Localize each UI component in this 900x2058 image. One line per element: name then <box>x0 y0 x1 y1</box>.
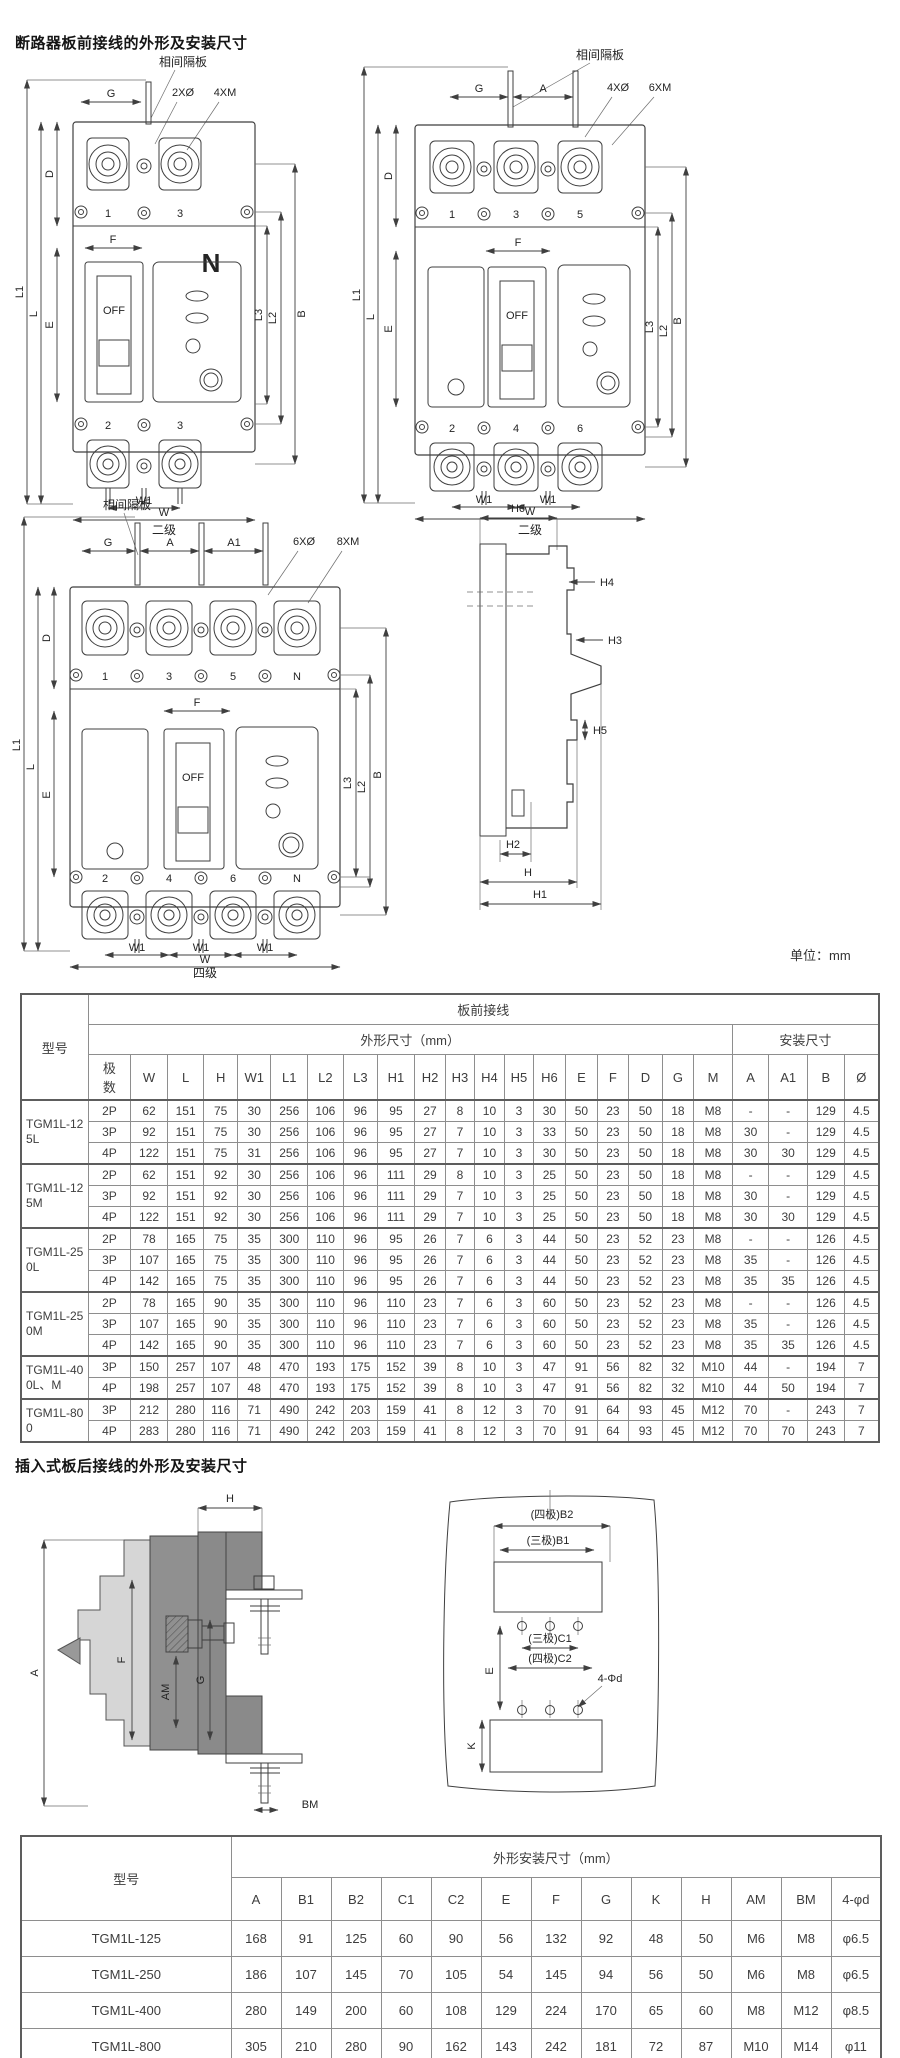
value-cell: 50 <box>566 1122 598 1143</box>
terminal-number: 3 <box>177 208 183 220</box>
dim-label: H6 <box>511 503 525 515</box>
value-cell: 151 <box>167 1186 204 1207</box>
value-cell: 75 <box>204 1228 238 1250</box>
value-cell: 50 <box>566 1100 598 1122</box>
value-cell: - <box>769 1164 808 1186</box>
table-row: TGM1L-400280149200601081292241706560M8M1… <box>21 1993 881 2029</box>
poles-cell: 2P <box>88 1100 131 1122</box>
lower-cutout <box>490 1720 602 1772</box>
dim-label: F <box>194 697 201 709</box>
value-cell: 10 <box>474 1164 504 1186</box>
dim-col-header: G <box>662 1055 694 1101</box>
value-cell: 107 <box>131 1314 168 1335</box>
value-cell: 23 <box>662 1228 694 1250</box>
value-cell: 110 <box>308 1250 344 1271</box>
value-cell: 64 <box>597 1399 629 1421</box>
value-cell: 8 <box>446 1100 474 1122</box>
value-cell: 7 <box>844 1378 879 1400</box>
model-column-header: 型号 <box>21 1836 231 1921</box>
value-cell: 70 <box>769 1421 808 1443</box>
value-cell: 194 <box>807 1378 844 1400</box>
value-cell: 45 <box>662 1399 694 1421</box>
dim-label: A1 <box>227 537 240 549</box>
value-cell: 132 <box>531 1921 581 1957</box>
value-cell: 23 <box>597 1122 629 1143</box>
value-cell: 90 <box>431 1921 481 1957</box>
value-cell: 96 <box>343 1186 378 1207</box>
value-cell: 95 <box>378 1100 415 1122</box>
breaker-body: 1 3 5 F OFF 2 4 6 <box>415 125 645 505</box>
value-cell: 27 <box>414 1100 446 1122</box>
value-cell: 116 <box>204 1421 238 1443</box>
two-pole-front-view-diagram: 相间隔板 G 2XØ 4XM 1 3 N F <box>15 52 315 536</box>
value-cell: 35 <box>732 1250 769 1271</box>
neutral-pole-label: N <box>202 248 221 278</box>
value-cell: 92 <box>131 1186 168 1207</box>
value-cell: 7 <box>446 1250 474 1271</box>
value-cell: 50 <box>681 1921 731 1957</box>
value-cell: 108 <box>431 1993 481 2029</box>
dim-label: H5 <box>593 725 607 737</box>
value-cell: 48 <box>631 1921 681 1957</box>
value-cell: 48 <box>237 1356 271 1378</box>
value-cell: 18 <box>662 1207 694 1229</box>
value-cell: - <box>769 1100 808 1122</box>
table-row: 3P92151753025610696952771033350235018M83… <box>21 1122 879 1143</box>
dim-label: H4 <box>600 577 614 589</box>
table-row: 4P14216575353001109695267634450235223M83… <box>21 1271 879 1293</box>
value-cell: 110 <box>308 1314 344 1335</box>
value-cell: 152 <box>378 1356 415 1378</box>
value-cell: 60 <box>533 1292 566 1314</box>
value-cell: 30 <box>533 1100 566 1122</box>
value-cell: 91 <box>566 1378 598 1400</box>
value-cell: 27 <box>414 1143 446 1165</box>
dim-label: G <box>107 88 116 100</box>
value-cell: 82 <box>629 1356 663 1378</box>
poles-cell: 3P <box>88 1250 131 1271</box>
value-cell: 30 <box>533 1143 566 1165</box>
value-cell: 4.5 <box>844 1314 879 1335</box>
value-cell: 256 <box>271 1100 308 1122</box>
col-header: B2 <box>331 1878 381 1921</box>
value-cell: 75 <box>204 1100 238 1122</box>
table-row: 3P107165903530011096110237636050235223M8… <box>21 1314 879 1335</box>
value-cell: M14 <box>781 2029 831 2058</box>
terminal-number: 4 <box>513 423 519 435</box>
value-cell: 168 <box>231 1921 281 1957</box>
value-cell: 159 <box>378 1421 415 1443</box>
value-cell: 10 <box>474 1207 504 1229</box>
terminal-number: 6 <box>577 423 583 435</box>
table-row: 4P1221519230256106961112971032550235018M… <box>21 1207 879 1229</box>
dim-col-header: H5 <box>505 1055 533 1101</box>
front-wiring-group-header: 板前接线 <box>88 994 879 1025</box>
value-cell: 75 <box>204 1122 238 1143</box>
value-cell: 41 <box>414 1399 446 1421</box>
value-cell: 23 <box>662 1314 694 1335</box>
value-cell: 23 <box>662 1335 694 1357</box>
dim-label: A <box>539 83 547 95</box>
value-cell: 280 <box>331 2029 381 2058</box>
dim-label: H <box>524 867 532 879</box>
col-header: F <box>531 1878 581 1921</box>
value-cell: 90 <box>381 2029 431 2058</box>
dim-label: E <box>44 321 56 328</box>
value-cell: 181 <box>581 2029 631 2058</box>
value-cell: 129 <box>807 1143 844 1165</box>
value-cell: M8 <box>694 1292 733 1314</box>
dim-label: E <box>41 791 53 798</box>
partition-callout: 相间隔板 <box>103 498 268 585</box>
value-cell: 50 <box>629 1164 663 1186</box>
partition-label: 相间隔板 <box>103 498 151 512</box>
dim-label: L <box>25 764 37 770</box>
value-cell: M8 <box>694 1250 733 1271</box>
value-cell: 126 <box>807 1292 844 1314</box>
value-cell: M8 <box>694 1335 733 1357</box>
dim-label: (三极)C1 <box>528 1631 571 1645</box>
value-cell: 96 <box>343 1143 378 1165</box>
dim-label: BM <box>302 1799 319 1811</box>
value-cell: M10 <box>694 1356 733 1378</box>
dim-label: E <box>383 325 395 332</box>
value-cell: 3 <box>505 1399 533 1421</box>
lower-hole-row <box>518 1700 583 1718</box>
value-cell: 92 <box>131 1122 168 1143</box>
value-cell: 23 <box>597 1314 629 1335</box>
value-cell: 143 <box>481 2029 531 2058</box>
value-cell: 280 <box>231 1993 281 2029</box>
value-cell: 305 <box>231 2029 281 2058</box>
dim-col-header: W1 <box>237 1055 271 1101</box>
value-cell: 18 <box>662 1122 694 1143</box>
poles-cell: 3P <box>88 1186 131 1207</box>
dim-label: W <box>200 954 211 966</box>
mounting-plate-drilling-diagram: (四极)B2 (三极)B1 (三极)C1 (四极)C2 E 4-Φd K <box>430 1486 675 1801</box>
value-cell: - <box>732 1164 769 1186</box>
dim-label: L1 <box>351 289 363 301</box>
terminal-number: N <box>293 671 301 683</box>
value-cell: 4.5 <box>844 1228 879 1250</box>
value-cell: 10 <box>474 1143 504 1165</box>
value-cell: 30 <box>769 1207 808 1229</box>
terminal-number: 1 <box>449 209 455 221</box>
mounting-plate-profile <box>480 544 506 836</box>
value-cell: 490 <box>271 1399 308 1421</box>
value-cell: 105 <box>431 1957 481 1993</box>
poles-cell: 4P <box>88 1143 131 1165</box>
breaker-body: 1 3 N F OFF 2 3 <box>73 122 255 504</box>
terminal-number: 3 <box>513 209 519 221</box>
value-cell: 35 <box>237 1292 271 1314</box>
plugin-install-dimension-table: 型号 外形安装尺寸（mm） AB1B2C1C2EFGKHAMBM4-φd TGM… <box>20 1835 882 2058</box>
terminal-number: 3 <box>166 671 172 683</box>
value-cell: 50 <box>566 1335 598 1357</box>
value-cell: 110 <box>308 1271 344 1293</box>
dim-label: L3 <box>253 309 265 321</box>
value-cell: 200 <box>331 1993 381 2029</box>
value-cell: 198 <box>131 1378 168 1400</box>
screw-count-label: 8XM <box>337 536 360 548</box>
dim-col-header: M <box>694 1055 733 1101</box>
value-cell: 4.5 <box>844 1335 879 1357</box>
value-cell: 126 <box>807 1271 844 1293</box>
value-cell: 106 <box>308 1100 344 1122</box>
value-cell: 4.5 <box>844 1271 879 1293</box>
value-cell: 50 <box>566 1186 598 1207</box>
value-cell: 39 <box>414 1378 446 1400</box>
value-cell: 6 <box>474 1335 504 1357</box>
value-cell: 23 <box>597 1292 629 1314</box>
value-cell: 30 <box>237 1164 271 1186</box>
value-cell: 7 <box>446 1271 474 1293</box>
value-cell: 4.5 <box>844 1164 879 1186</box>
value-cell: 110 <box>378 1314 415 1335</box>
value-cell: M8 <box>694 1100 733 1122</box>
value-cell: 7 <box>844 1356 879 1378</box>
dim-label: (四极)B2 <box>531 1507 574 1521</box>
dim-label: G <box>104 537 113 549</box>
col-header: G <box>581 1878 631 1921</box>
value-cell: 70 <box>381 1957 431 1993</box>
value-cell: 106 <box>308 1186 344 1207</box>
value-cell: 203 <box>343 1421 378 1443</box>
value-cell: 490 <box>271 1421 308 1443</box>
value-cell: 3 <box>505 1186 533 1207</box>
value-cell: 111 <box>378 1207 415 1229</box>
value-cell: M6 <box>731 1957 781 1993</box>
value-cell: 126 <box>807 1314 844 1335</box>
value-cell: 3 <box>505 1164 533 1186</box>
value-cell: 111 <box>378 1186 415 1207</box>
value-cell: 75 <box>204 1250 238 1271</box>
value-cell: 300 <box>271 1250 308 1271</box>
dim-col-header: H4 <box>474 1055 504 1101</box>
value-cell: 8 <box>446 1399 474 1421</box>
hole-spec-label: 4-Φd <box>598 1673 623 1685</box>
dim-col-header: E <box>566 1055 598 1101</box>
dim-label: B <box>372 771 384 778</box>
value-cell: 33 <box>533 1122 566 1143</box>
value-cell: 50 <box>681 1957 731 1993</box>
col-header: 4-φd <box>831 1878 881 1921</box>
value-cell: 50 <box>566 1143 598 1165</box>
value-cell: 90 <box>204 1314 238 1335</box>
terminal-number: 5 <box>577 209 583 221</box>
value-cell: 50 <box>769 1378 808 1400</box>
value-cell: 106 <box>308 1143 344 1165</box>
value-cell: 243 <box>807 1399 844 1421</box>
value-cell: 70 <box>732 1399 769 1421</box>
poles-cell: 3P <box>88 1356 131 1378</box>
value-cell: 23 <box>597 1164 629 1186</box>
value-cell: 91 <box>566 1421 598 1443</box>
dim-col-header: W <box>131 1055 168 1101</box>
breaker-side-outline <box>506 546 601 828</box>
col-header: A <box>231 1878 281 1921</box>
value-cell: 71 <box>237 1421 271 1443</box>
value-cell: 145 <box>531 1957 581 1993</box>
value-cell: 8 <box>446 1356 474 1378</box>
poles-cell: 3P <box>88 1122 131 1143</box>
dim-label: (四极)C2 <box>528 1651 571 1665</box>
value-cell: 110 <box>308 1228 344 1250</box>
value-cell: 212 <box>131 1399 168 1421</box>
col-header: H <box>681 1878 731 1921</box>
value-cell: 10 <box>474 1100 504 1122</box>
dim-label: B <box>672 317 684 324</box>
value-cell: 25 <box>533 1186 566 1207</box>
dim-label: B <box>296 310 308 317</box>
value-cell: 95 <box>378 1143 415 1165</box>
value-cell: 129 <box>807 1122 844 1143</box>
value-cell: 10 <box>474 1356 504 1378</box>
value-cell: 35 <box>769 1335 808 1357</box>
value-cell: 151 <box>167 1100 204 1122</box>
value-cell: 30 <box>732 1207 769 1229</box>
dim-label: A <box>29 1669 41 1677</box>
dim-label: H1 <box>533 889 547 901</box>
terminal-number: 3 <box>177 420 183 432</box>
value-cell: 70 <box>732 1421 769 1443</box>
col-header: E <box>481 1878 531 1921</box>
value-cell: 35 <box>769 1271 808 1293</box>
value-cell: 32 <box>662 1378 694 1400</box>
value-cell: 29 <box>414 1207 446 1229</box>
value-cell: 52 <box>629 1228 663 1250</box>
model-cell: TGM1L-125M <box>21 1164 88 1228</box>
value-cell: 70 <box>533 1421 566 1443</box>
value-cell: 142 <box>131 1335 168 1357</box>
value-cell: 50 <box>629 1122 663 1143</box>
value-cell: φ6.5 <box>831 1921 881 1957</box>
value-cell: 165 <box>167 1228 204 1250</box>
value-cell: 193 <box>308 1378 344 1400</box>
value-cell: 35 <box>237 1271 271 1293</box>
dim-label: G <box>475 83 484 95</box>
value-cell: 18 <box>662 1164 694 1186</box>
value-cell: 3 <box>505 1421 533 1443</box>
table-row: 4P122151753125610696952771033050235018M8… <box>21 1143 879 1165</box>
value-cell: - <box>769 1250 808 1271</box>
dim-label: W1 <box>193 942 210 954</box>
side-profile-diagram: H6 H4 H3 H5 H2 H H1 <box>455 492 715 917</box>
value-cell: 23 <box>662 1292 694 1314</box>
value-cell: M12 <box>781 1993 831 2029</box>
value-cell: 52 <box>629 1335 663 1357</box>
value-cell: 31 <box>237 1143 271 1165</box>
value-cell: 56 <box>597 1356 629 1378</box>
terminal-number: 4 <box>166 873 172 885</box>
value-cell: 3 <box>505 1100 533 1122</box>
value-cell: 106 <box>308 1207 344 1229</box>
value-cell: - <box>732 1228 769 1250</box>
poles-cell: 3P <box>88 1314 131 1335</box>
dim-label: F <box>116 1656 128 1663</box>
three-pole-front-view-diagram: 相间隔板 G A 4XØ 6XM <box>350 45 695 537</box>
value-cell: 23 <box>597 1335 629 1357</box>
value-cell: - <box>769 1314 808 1335</box>
value-cell: 60 <box>533 1335 566 1357</box>
value-cell: 203 <box>343 1399 378 1421</box>
value-cell: 165 <box>167 1335 204 1357</box>
value-cell: M12 <box>694 1421 733 1443</box>
dim-label: L2 <box>267 312 279 324</box>
value-cell: 151 <box>167 1164 204 1186</box>
value-cell: 110 <box>308 1292 344 1314</box>
dim-label: H <box>226 1493 234 1505</box>
value-cell: 95 <box>378 1122 415 1143</box>
poles-cell: 4P <box>88 1335 131 1357</box>
value-cell: 10 <box>474 1186 504 1207</box>
value-cell: 78 <box>131 1228 168 1250</box>
value-cell: 107 <box>281 1957 331 1993</box>
value-cell: 44 <box>533 1271 566 1293</box>
value-cell: 30 <box>237 1186 271 1207</box>
value-cell: 23 <box>662 1250 694 1271</box>
value-cell: 110 <box>308 1335 344 1357</box>
value-cell: 210 <box>281 2029 331 2058</box>
value-cell: 129 <box>807 1164 844 1186</box>
value-cell: 44 <box>533 1250 566 1271</box>
value-cell: 165 <box>167 1292 204 1314</box>
hole-count-label: 2XØ <box>172 87 194 99</box>
table-row: TGM1L-250L2P7816575353001109695267634450… <box>21 1228 879 1250</box>
value-cell: 78 <box>131 1292 168 1314</box>
value-cell: 50 <box>629 1186 663 1207</box>
value-cell: 52 <box>629 1250 663 1271</box>
datasheet-page: 断路器板前接线的外形及安装尺寸 相间隔板 G 2XØ 4XM <box>0 0 900 2058</box>
value-cell: M8 <box>694 1228 733 1250</box>
col-header: BM <box>781 1878 831 1921</box>
dim-label: L1 <box>15 286 26 298</box>
value-cell: 129 <box>807 1100 844 1122</box>
value-cell: 4.5 <box>844 1122 879 1143</box>
value-cell: 96 <box>343 1228 378 1250</box>
dim-col-header: F <box>597 1055 629 1101</box>
value-cell: 23 <box>597 1100 629 1122</box>
value-cell: 50 <box>629 1100 663 1122</box>
partition-label: 相间隔板 <box>576 48 624 62</box>
value-cell: 52 <box>629 1271 663 1293</box>
value-cell: 3 <box>505 1207 533 1229</box>
dim-col-header: L1 <box>271 1055 308 1101</box>
table-row: TGM1L-400L、M3P15025710748470193175152398… <box>21 1356 879 1378</box>
value-cell: 470 <box>271 1356 308 1378</box>
value-cell: 27 <box>414 1122 446 1143</box>
value-cell: 145 <box>331 1957 381 1993</box>
value-cell: 93 <box>629 1421 663 1443</box>
value-cell: 30 <box>237 1207 271 1229</box>
dim-col-header: H <box>204 1055 238 1101</box>
table-row: TGM1L-250M2P7816590353001109611023763605… <box>21 1292 879 1314</box>
col-header: B1 <box>281 1878 331 1921</box>
value-cell: 96 <box>343 1271 378 1293</box>
value-cell: 256 <box>271 1186 308 1207</box>
dim-col-header: H3 <box>446 1055 474 1101</box>
pole-count-caption: 四级 <box>193 966 217 979</box>
value-cell: 47 <box>533 1378 566 1400</box>
terminal-number: 1 <box>105 208 111 220</box>
value-cell: 3 <box>505 1335 533 1357</box>
dim-label: L2 <box>356 781 368 793</box>
value-cell: 26 <box>414 1250 446 1271</box>
rail-clip-detail <box>512 790 524 816</box>
value-cell: 93 <box>629 1399 663 1421</box>
value-cell: 23 <box>414 1314 446 1335</box>
value-cell: 23 <box>597 1228 629 1250</box>
